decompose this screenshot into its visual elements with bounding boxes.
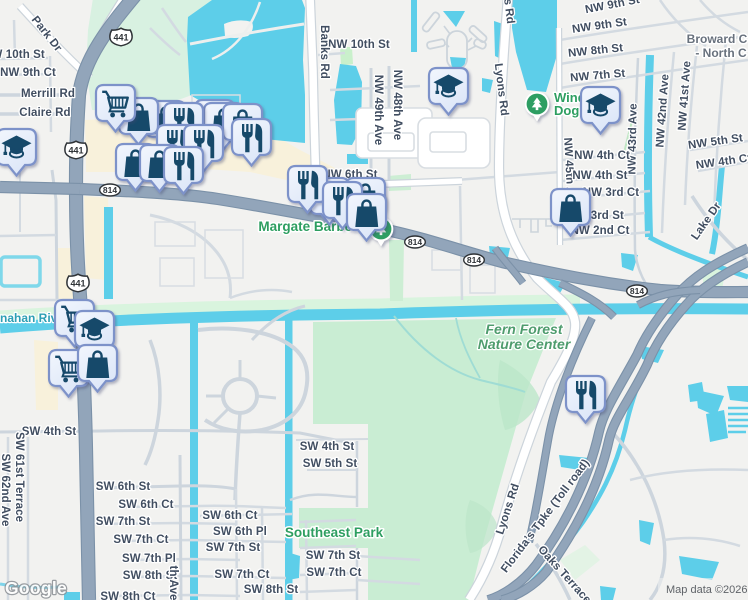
svg-text:Merrill Rd: Merrill Rd	[21, 88, 75, 100]
svg-text:NW 2nd Ct: NW 2nd Ct	[570, 225, 629, 237]
svg-text:SW 7th Ct: SW 7th Ct	[113, 534, 168, 546]
svg-text:SW 4th St: SW 4th St	[22, 426, 77, 438]
svg-text:Southeast Park: Southeast Park	[285, 525, 384, 540]
svg-text:SW 61st Terrace: SW 61st Terrace	[13, 432, 25, 522]
svg-text:NW 10th St: NW 10th St	[0, 49, 45, 61]
svg-text:SW 8th St: SW 8th St	[244, 584, 299, 596]
svg-text:nahan Riv: nahan Riv	[0, 311, 58, 325]
svg-text:SW 6th St: SW 6th St	[96, 481, 151, 493]
svg-text:SW 4th St: SW 4th St	[300, 441, 355, 453]
svg-text:NW 3rd Ct: NW 3rd Ct	[583, 187, 640, 199]
svg-text:SW 8th Ct: SW 8th Ct	[100, 591, 155, 600]
svg-text:SW 7th Ct: SW 7th Ct	[306, 567, 361, 579]
svg-text:NW 49th Ave: NW 49th Ave	[372, 75, 384, 146]
svg-text:Banks Rd: Banks Rd	[318, 25, 330, 79]
svg-text:NW 4th St: NW 4th St	[572, 170, 627, 182]
svg-text:SW 7th St: SW 7th St	[206, 542, 261, 554]
svg-text:SW 62nd Ave: SW 62nd Ave	[0, 453, 11, 526]
svg-text:NW 10th St: NW 10th St	[328, 39, 390, 51]
svg-text:Broward C: Broward C	[687, 32, 748, 46]
svg-text:SW 6th Pl: SW 6th Pl	[213, 526, 267, 538]
svg-text:NW 4th Ct: NW 4th Ct	[574, 150, 630, 162]
svg-text:SW 7th Ct: SW 7th Ct	[214, 569, 269, 581]
svg-text:SW 5th St: SW 5th St	[303, 458, 358, 470]
svg-text:Google: Google	[5, 578, 67, 598]
svg-text:SW 7th Pl: SW 7th Pl	[122, 553, 176, 565]
svg-text:th Ave: th Ave	[167, 566, 179, 600]
svg-text:SW 7th St: SW 7th St	[96, 516, 151, 528]
svg-text:Claire Rd: Claire Rd	[19, 107, 70, 119]
svg-text:Map data ©2026: Map data ©2026	[666, 584, 748, 596]
svg-text:- North C: - North C	[695, 46, 747, 60]
svg-text:NW 43rd Ave: NW 43rd Ave	[626, 103, 639, 174]
svg-text:SW 6th Ct: SW 6th Ct	[202, 510, 257, 522]
svg-text:NW 48th Ave: NW 48th Ave	[391, 70, 403, 141]
svg-text:Fern Forest: Fern Forest	[485, 321, 563, 337]
svg-text:NW 9th Ct: NW 9th Ct	[0, 67, 56, 79]
svg-text:SW 6th Ct: SW 6th Ct	[118, 499, 173, 511]
svg-text:SW 7th St: SW 7th St	[306, 550, 361, 562]
svg-text:Nature Center: Nature Center	[478, 336, 572, 352]
